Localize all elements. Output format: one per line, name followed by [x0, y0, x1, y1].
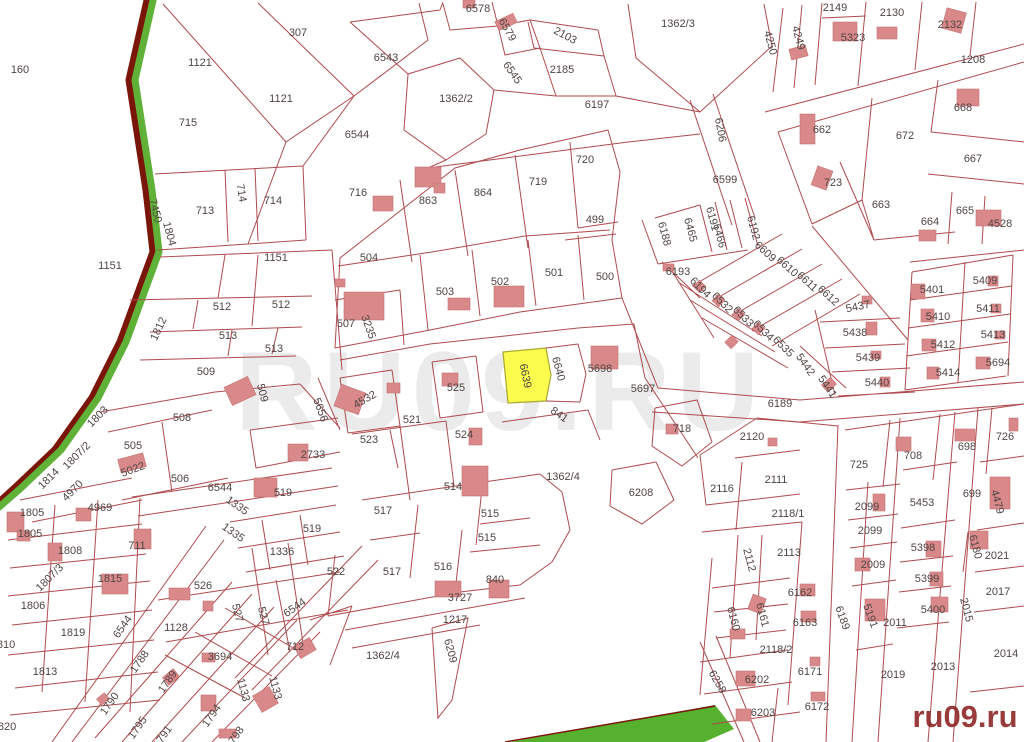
parcel-label[interactable]: 517: [383, 566, 401, 578]
parcel-label[interactable]: 1217: [443, 614, 467, 626]
parcel-label[interactable]: 5439: [856, 352, 880, 364]
parcel-label[interactable]: 1151: [264, 252, 288, 264]
parcel-label[interactable]: 524: [455, 429, 473, 441]
parcel-label[interactable]: 2118/1: [772, 508, 805, 520]
parcel-label[interactable]: 5401: [920, 284, 944, 296]
parcel-label[interactable]: 715: [179, 117, 197, 129]
parcel-label[interactable]: 499: [586, 214, 604, 226]
parcel-label[interactable]: 5438: [843, 327, 867, 339]
parcel-label[interactable]: 515: [478, 532, 496, 544]
parcel-label[interactable]: 2009: [861, 559, 885, 571]
parcel-label[interactable]: 5694: [986, 357, 1010, 369]
building-footprint: [335, 279, 345, 287]
parcel-label[interactable]: 509: [197, 366, 215, 378]
building-footprint: [866, 322, 877, 335]
parcel-label[interactable]: 6172: [805, 701, 829, 713]
parcel-label[interactable]: 2099: [858, 525, 882, 537]
parcel-label[interactable]: 1805: [20, 507, 44, 519]
parcel-label[interactable]: 513: [265, 343, 283, 355]
parcel-label[interactable]: 508: [173, 412, 191, 424]
building-footprint: [810, 657, 820, 666]
parcel-label[interactable]: 6197: [585, 99, 609, 111]
parcel-label[interactable]: 519: [303, 523, 321, 535]
parcel-label[interactable]: 723: [824, 177, 842, 189]
parcel-label[interactable]: 1810: [0, 639, 15, 651]
building-footprint: [768, 438, 777, 446]
parcel-label[interactable]: 503: [436, 286, 454, 298]
parcel-label[interactable]: 5411: [976, 303, 1000, 315]
building-footprint: [811, 692, 825, 701]
parcel-label[interactable]: 3694: [208, 651, 232, 663]
parcel-label[interactable]: 2113: [777, 547, 801, 559]
parcel-label[interactable]: 4969: [88, 502, 112, 514]
parcel-label[interactable]: 5398: [911, 542, 935, 554]
building-footprint: [462, 466, 488, 496]
building-footprint: [955, 429, 975, 441]
parcel-label[interactable]: 1121: [269, 93, 293, 105]
parcel-label[interactable]: 512: [272, 299, 290, 311]
parcel-label[interactable]: 708: [904, 450, 922, 462]
site-logo: ru09.ru: [912, 699, 1017, 734]
building-footprint: [203, 601, 213, 611]
parcel-label[interactable]: 1806: [21, 600, 45, 612]
building-footprint: [387, 383, 400, 393]
parcel-label[interactable]: 4528: [988, 218, 1012, 230]
parcel-label[interactable]: 720: [576, 154, 594, 166]
parcel-label[interactable]: 699: [963, 488, 981, 500]
parcel-label[interactable]: 840: [486, 574, 504, 586]
building-footprint: [494, 286, 524, 307]
parcel-label[interactable]: 672: [896, 130, 914, 142]
parcel-label[interactable]: 505: [124, 440, 142, 452]
parcel-label[interactable]: 504: [360, 252, 378, 264]
parcel-label[interactable]: 5399: [915, 573, 939, 585]
parcel-label[interactable]: 1808: [58, 545, 82, 557]
parcel-label[interactable]: 516: [434, 561, 452, 573]
parcel-label[interactable]: 863: [419, 195, 437, 207]
watermark: RU09.RU: [235, 329, 765, 454]
parcel-label[interactable]: 5412: [931, 339, 955, 351]
parcel-label[interactable]: 6599: [713, 174, 737, 186]
parcel-label[interactable]: 2111: [765, 474, 788, 486]
parcel-label[interactable]: 6203: [751, 707, 775, 719]
parcel-label[interactable]: 667: [964, 153, 982, 165]
parcel-label[interactable]: 1813: [33, 666, 57, 678]
parcel-label[interactable]: 2185: [550, 64, 574, 76]
parcel-label[interactable]: 2130: [880, 7, 904, 19]
parcel-label[interactable]: 5323: [841, 32, 865, 44]
parcel-label[interactable]: 711: [128, 540, 146, 552]
parcel-label[interactable]: 1805: [18, 528, 42, 540]
parcel-label[interactable]: 5413: [981, 329, 1005, 341]
parcel-label[interactable]: 719: [529, 176, 547, 188]
parcel-label[interactable]: 6163: [793, 617, 817, 629]
parcel-label[interactable]: 500: [596, 271, 614, 283]
parcel-label[interactable]: 668: [954, 102, 972, 114]
parcel-label[interactable]: 6544: [208, 482, 232, 494]
building-footprint: [736, 709, 751, 721]
parcel-label[interactable]: 1121: [188, 57, 212, 69]
parcel-label[interactable]: 2116: [710, 483, 734, 495]
parcel-label[interactable]: 2011: [883, 617, 907, 629]
parcel-label[interactable]: 519: [274, 487, 292, 499]
parcel-label[interactable]: 2099: [855, 501, 879, 513]
parcel-label[interactable]: 525: [447, 382, 465, 394]
parcel-label[interactable]: 6208: [629, 487, 653, 499]
parcel-label[interactable]: 1819: [61, 627, 85, 639]
parcel-label[interactable]: 1362/2: [439, 93, 473, 105]
cadastral-map[interactable]: RU09.RU 16030711211121715713714714745018…: [0, 0, 1024, 742]
parcel-label[interactable]: 6578: [466, 3, 490, 15]
parcel-label[interactable]: 714: [264, 195, 282, 207]
parcel-label[interactable]: 716: [349, 187, 367, 199]
parcel-label[interactable]: 512: [213, 301, 231, 313]
parcel-label[interactable]: 1820: [0, 721, 16, 733]
building-footprint: [373, 196, 393, 211]
parcel-label[interactable]: 1208: [961, 54, 985, 66]
parcel-label[interactable]: 718: [673, 423, 691, 435]
parcel-label[interactable]: 6193: [666, 266, 690, 278]
parcel-label[interactable]: 506: [171, 473, 189, 485]
parcel-label[interactable]: 523: [360, 434, 378, 446]
parcel-label[interactable]: 712: [286, 641, 304, 653]
parcel-label[interactable]: 2017: [986, 586, 1010, 598]
parcel-label[interactable]: 521: [403, 414, 421, 426]
parcel-label[interactable]: 2118/2: [760, 644, 793, 656]
parcel-label[interactable]: 6543: [374, 52, 398, 64]
parcel-label[interactable]: 515: [481, 508, 499, 520]
parcel-label[interactable]: 5453: [910, 497, 934, 509]
parcel-label[interactable]: 160: [11, 64, 29, 76]
parcel-label[interactable]: 1336: [270, 546, 294, 558]
parcel-label[interactable]: 663: [872, 199, 890, 211]
parcel-label[interactable]: 1362/4: [366, 650, 400, 662]
parcel-label[interactable]: 5414: [936, 367, 960, 379]
parcel-label[interactable]: 713: [196, 205, 214, 217]
cadastral-map-viewport[interactable]: RU09.RU 16030711211121715713714714745018…: [0, 0, 1024, 742]
parcel-label[interactable]: 725: [850, 459, 868, 471]
parcel-label[interactable]: 5697: [631, 383, 655, 395]
parcel-label[interactable]: 501: [545, 267, 563, 279]
building-footprint: [1009, 418, 1018, 431]
parcel-label[interactable]: 664: [921, 216, 939, 228]
parcel-label[interactable]: 3727: [448, 592, 472, 604]
parcel-label[interactable]: 507: [337, 318, 355, 330]
building-footprint: [877, 27, 897, 39]
parcel-label[interactable]: 2013: [931, 661, 955, 673]
parcel-label[interactable]: 662: [813, 124, 831, 136]
parcel-label[interactable]: 6189: [768, 398, 792, 410]
parcel-label[interactable]: 2733: [301, 449, 325, 461]
parcel-label[interactable]: 6162: [788, 587, 812, 599]
parcel-label[interactable]: 522: [327, 566, 345, 578]
parcel-label[interactable]: 1815: [98, 573, 122, 585]
parcel-label[interactable]: 665: [956, 205, 974, 217]
parcel-label[interactable]: 514: [444, 481, 462, 493]
parcel-label[interactable]: 2019: [881, 669, 905, 681]
parcel-label[interactable]: 698: [958, 441, 976, 453]
parcel-label[interactable]: 5410: [926, 311, 950, 323]
parcel-label[interactable]: 1151: [98, 260, 122, 272]
parcel-label[interactable]: 6202: [745, 674, 769, 686]
parcel-label[interactable]: 1362/4: [546, 471, 580, 483]
building-footprint: [434, 183, 445, 193]
parcel-label[interactable]: 5409: [973, 275, 997, 287]
parcel-label[interactable]: 6544: [345, 129, 369, 141]
parcel-label[interactable]: 513: [219, 330, 237, 342]
building-footprint: [169, 588, 190, 600]
parcel-label[interactable]: 2014: [994, 648, 1018, 660]
parcel-label[interactable]: 502: [491, 276, 509, 288]
parcel-label[interactable]: 6171: [798, 666, 822, 678]
parcel-label[interactable]: 2021: [985, 550, 1009, 562]
parcel-label[interactable]: 2132: [938, 19, 962, 31]
building-footprint: [448, 298, 470, 310]
parcel-label[interactable]: 864: [474, 187, 492, 199]
parcel-label[interactable]: 5440: [865, 377, 889, 389]
building-footprint: [919, 230, 936, 241]
parcel-label[interactable]: 2120: [740, 431, 764, 443]
parcel-label[interactable]: 5400: [921, 604, 945, 616]
parcel-label[interactable]: 2149: [823, 2, 847, 14]
parcel-label[interactable]: 517: [374, 505, 392, 517]
parcel-label[interactable]: 307: [289, 27, 307, 39]
parcel-label[interactable]: 526: [194, 580, 212, 592]
parcel-label[interactable]: 1362/3: [661, 18, 695, 30]
parcel-label[interactable]: 5698: [588, 363, 612, 375]
building-footprint: [896, 437, 911, 451]
parcel-label[interactable]: 726: [996, 431, 1014, 443]
parcel-label[interactable]: 1128: [164, 622, 188, 634]
